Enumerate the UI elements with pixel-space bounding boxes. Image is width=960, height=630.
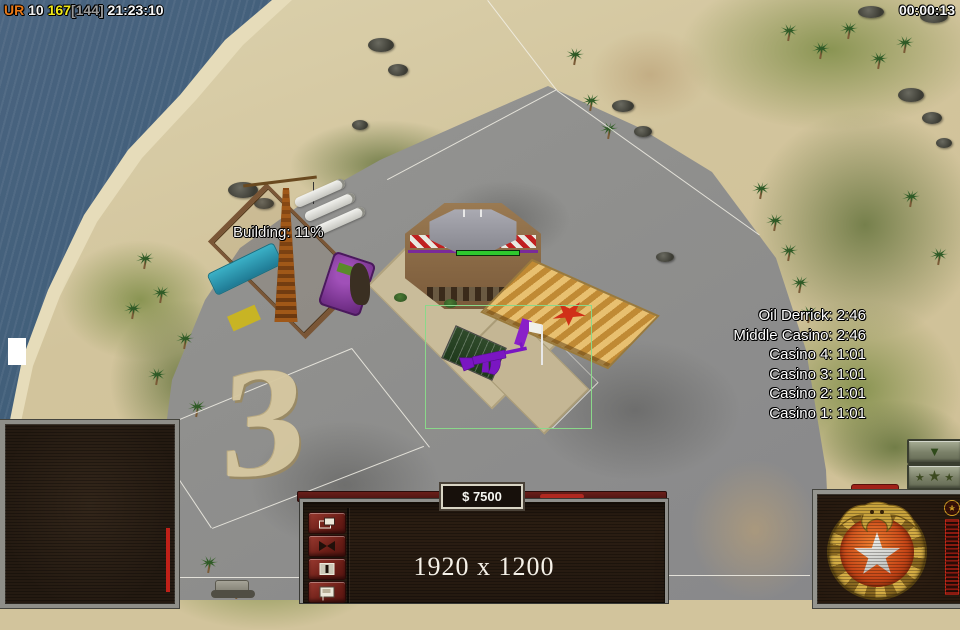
building-progress-label: Building: 11% <box>233 224 324 241</box>
palm-tree <box>148 368 166 384</box>
chevron-down-icon: ▼ <box>928 444 941 459</box>
palm-tree <box>566 48 584 64</box>
stacked-windows-icon <box>319 518 335 529</box>
rock <box>388 64 408 76</box>
resolution-label: 1920 x 1200 <box>414 552 555 582</box>
rock <box>898 88 924 102</box>
health-bar <box>456 250 520 256</box>
collapse-button[interactable]: ▼ <box>907 439 960 464</box>
timer-line: Middle Casino: 2:46 <box>733 326 866 346</box>
rock <box>634 126 652 137</box>
survey-line <box>487 0 557 90</box>
player-tag: UR <box>4 2 24 18</box>
palm-tree <box>812 42 830 58</box>
rock <box>352 120 368 130</box>
star-icon: ★ <box>915 472 925 484</box>
construction-material <box>227 305 261 332</box>
grass-patch <box>680 0 960 130</box>
palm-tree <box>152 286 170 302</box>
palm-tree <box>124 302 142 318</box>
timer-line: Casino 3: 1:01 <box>733 365 866 385</box>
general-rank-button[interactable]: ★ ★ ★ <box>907 464 960 490</box>
white-marker <box>8 338 26 365</box>
palm-tree <box>930 248 948 264</box>
poster-icon <box>320 587 335 598</box>
palm-tree <box>752 182 770 198</box>
sand-patch <box>590 30 710 120</box>
rock <box>858 6 884 18</box>
palm-tree <box>766 214 784 230</box>
star-icon: ★ <box>928 468 941 485</box>
player-score: 167 <box>48 2 71 18</box>
selection-rectangle <box>425 305 592 429</box>
minimap-red-stripe <box>166 528 170 592</box>
capture-timer-list: Oil Derrick: 2:46 Middle Casino: 2:46 Ca… <box>733 306 866 423</box>
bowtie-icon <box>319 541 335 551</box>
dirt-patch <box>690 460 820 600</box>
faction-scanlines <box>817 494 960 604</box>
timer-line: Casino 4: 1:01 <box>733 345 866 365</box>
money-display: $ 7500 <box>441 484 523 509</box>
command-console: 1920 x 1200 <box>300 499 668 603</box>
rock <box>612 100 634 112</box>
console-button-pause[interactable] <box>308 558 346 580</box>
roof-pole <box>463 201 465 217</box>
bush <box>394 293 407 302</box>
dozer-tread <box>211 590 255 598</box>
palm-tree <box>870 52 888 68</box>
palm-tree <box>791 276 809 292</box>
timer-line: Casino 1: 1:01 <box>733 404 866 424</box>
console-button-tools[interactable] <box>308 535 346 557</box>
player-status-bar: UR 10 167[144] 21:23:10 <box>4 2 164 18</box>
minimap-scanlines <box>5 424 175 604</box>
roof-pole <box>480 201 482 217</box>
palm-tree <box>136 252 154 268</box>
console-button-options[interactable] <box>308 512 346 534</box>
timer-line: Oil Derrick: 2:46 <box>733 306 866 326</box>
palm-tree <box>902 190 920 206</box>
ground-numeral: 3 <box>220 340 309 505</box>
palm-tree <box>200 556 218 572</box>
score-bracket: [144] <box>71 2 104 18</box>
palm-tree <box>896 36 914 52</box>
console-divider <box>347 508 349 603</box>
faction-panel: ★ <box>813 490 960 608</box>
clock: 21:23:10 <box>104 2 164 18</box>
minimap-panel[interactable] <box>0 420 179 608</box>
match-timer: 00:00:13 <box>899 2 955 18</box>
construction-dozer-unit[interactable] <box>205 578 261 600</box>
pause-box-icon <box>320 563 335 575</box>
rock <box>936 138 952 148</box>
palm-tree <box>582 94 600 110</box>
palm-tree <box>780 244 798 260</box>
palm-tree <box>780 24 798 40</box>
crane-arm <box>243 176 317 188</box>
survey-line <box>665 575 810 576</box>
star-icon: ★ <box>944 472 954 484</box>
statue <box>350 263 370 305</box>
timer-line: Casino 2: 1:01 <box>733 384 866 404</box>
palm-tree <box>840 22 858 38</box>
rock <box>656 252 674 262</box>
tower-roof <box>429 209 516 251</box>
rock <box>922 112 942 124</box>
player-number: 10 <box>24 2 47 18</box>
rock <box>368 38 394 52</box>
